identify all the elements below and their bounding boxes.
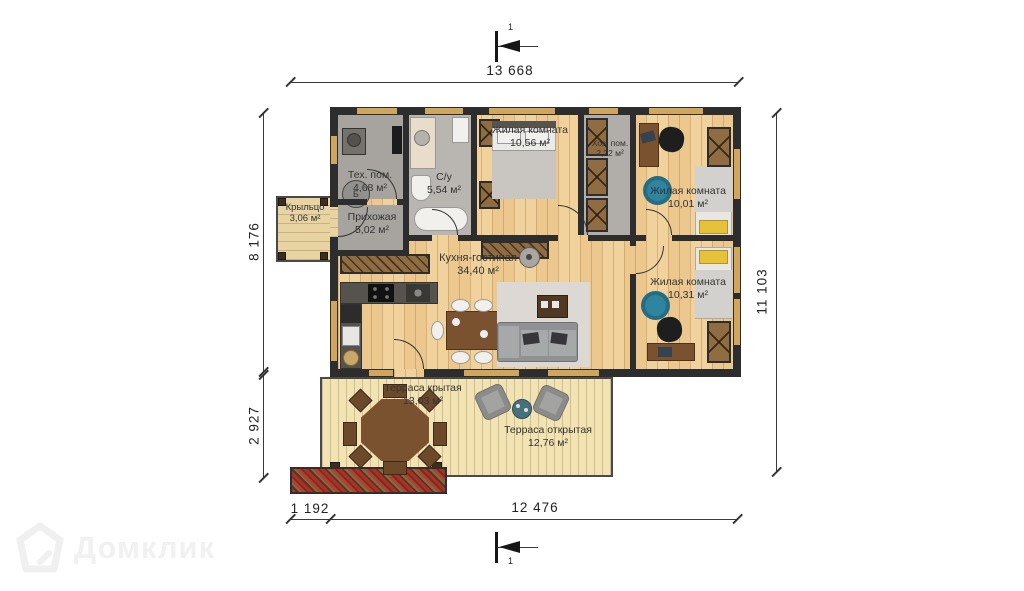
terrace-chair (343, 422, 357, 446)
pillow (699, 220, 728, 234)
dining-chair (474, 351, 493, 364)
dimension-bottom-large: 12 476 (500, 500, 570, 515)
dimension-bottom-small: 1 192 (283, 501, 337, 516)
blanket (492, 150, 556, 199)
window (330, 300, 338, 362)
section-arrow-icon (499, 40, 520, 52)
room-label-bedroom-2: Жилая комната 10,01 м² (640, 185, 736, 210)
room-label-hallway: Прихожая 5,02 м² (328, 211, 416, 236)
window (463, 369, 520, 377)
room-label-terrace-covered: Терраса крытая 13,03 м² (368, 382, 478, 407)
bathroom-cabinet (452, 117, 469, 143)
room-label-porch: Крыльцо 3,06 м² (276, 202, 334, 225)
door-opening (394, 369, 424, 377)
wall-interior (397, 199, 403, 205)
dining-chair (451, 299, 470, 312)
sink (414, 130, 430, 146)
room-label-bedroom-1: Жилая комната 10,56 м² (478, 124, 582, 149)
room-label-utility: Хоз. пом. 2,22 м² (588, 138, 632, 158)
wall-interior (471, 235, 558, 241)
wall-interior (338, 199, 367, 205)
window (547, 369, 600, 377)
window (424, 107, 464, 115)
window (488, 107, 556, 115)
porch-post (278, 252, 286, 260)
terrace-chair (433, 422, 447, 446)
window (648, 107, 704, 115)
cup (524, 408, 528, 412)
laptop (658, 347, 672, 357)
wall-cabinet (392, 126, 402, 154)
watermark: Домклик (16, 522, 215, 574)
terrace-chair (383, 461, 407, 475)
washing-machine-drum (347, 133, 361, 147)
watermark-text: Домклик (74, 530, 215, 566)
dimension-line-top (290, 82, 738, 83)
cup (516, 404, 520, 408)
wall-interior (588, 235, 630, 241)
dimension-left-lower: 2 927 (247, 396, 262, 456)
dining-chair (431, 321, 444, 340)
wall-interior (636, 235, 646, 241)
dining-chair (451, 351, 470, 364)
coffee-machine (341, 305, 361, 323)
wall-interior (338, 250, 409, 256)
wardrobe (586, 198, 608, 232)
wardrobe (707, 127, 731, 167)
plant-pot (343, 350, 359, 366)
terrace-side-table (512, 399, 532, 419)
plate (452, 318, 460, 326)
decor (552, 301, 559, 308)
flower-bed (290, 467, 447, 494)
sofa-pillow (550, 332, 567, 345)
dimension-line-right (776, 113, 777, 472)
domclick-logo-icon (16, 522, 64, 574)
wardrobe (707, 321, 731, 363)
section-arrow-icon (499, 541, 520, 553)
floor-plan: Домклик Б (0, 0, 1024, 591)
pillow (699, 250, 728, 264)
wall-interior (458, 235, 471, 241)
section-mark-number: 1 (508, 556, 513, 566)
room-label-terrace-open: Терраса открытая 12,76 м² (488, 424, 608, 449)
wardrobe (340, 254, 430, 274)
room-label-kitchen-living: Кухня-гостиная 34,40 м² (418, 252, 538, 278)
window (330, 135, 338, 165)
section-mark-number: 1 (508, 22, 513, 32)
dimension-right: 11 103 (755, 262, 770, 322)
wall-interior (630, 274, 636, 369)
room-label-tech: Тех. пом. 4,68 м² (330, 169, 410, 194)
stove (368, 284, 394, 302)
dimension-top: 13 668 (475, 63, 545, 78)
dining-chair (474, 299, 493, 312)
porch-post (320, 252, 328, 260)
wall-interior (630, 115, 636, 246)
wardrobe (586, 158, 608, 196)
window (588, 107, 619, 115)
room-label-bedroom-3: Жилая комната 10,31 м² (640, 276, 736, 301)
sofa-pillow (522, 332, 539, 345)
desk (639, 123, 659, 167)
window (356, 107, 398, 115)
dishwasher (342, 326, 360, 346)
dimension-left-upper: 8 176 (247, 212, 262, 272)
dimension-line-left-lower (263, 375, 264, 478)
sofa-chaise (499, 326, 519, 358)
plate (480, 330, 488, 338)
decor (541, 301, 548, 308)
dimension-line-bottom (290, 519, 737, 520)
window (733, 298, 741, 346)
window (368, 369, 394, 377)
wall-interior (672, 235, 733, 241)
dining-table (446, 311, 498, 350)
room-label-bathroom: С/у 5,54 м² (414, 171, 474, 196)
kitchen-sink (406, 284, 430, 302)
dimension-line-left-upper (263, 113, 264, 372)
